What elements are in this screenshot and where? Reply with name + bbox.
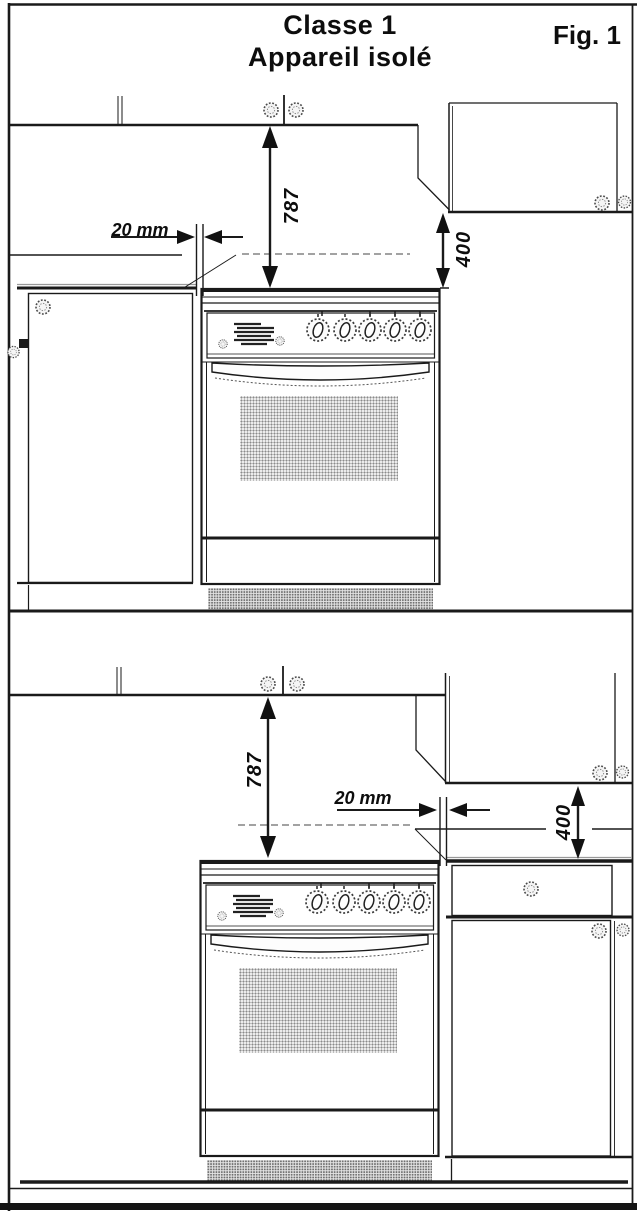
top-wall-line — [10, 254, 449, 289]
top-400-dimension-label: 400 — [452, 214, 476, 284]
bottom-400-dimension-label: 400 — [552, 787, 576, 857]
top-gap-dimension-label: 20 mm — [85, 219, 195, 241]
top-gap-lines — [197, 224, 204, 296]
bottom-gap-dimension-label: 20 mm — [308, 787, 418, 809]
figure-title-line2: Appareil isolé — [185, 41, 495, 73]
page-frame-bottom — [0, 1203, 637, 1210]
page-frame — [8, 3, 637, 1211]
top-diagram-linework — [8, 95, 632, 611]
top-400-arrow — [436, 213, 450, 288]
figure-number-label: Fig. 1 — [541, 20, 633, 51]
stove-drawing-top — [201, 289, 440, 584]
bottom-787-dimension-label: 787 — [243, 735, 267, 805]
top-787-dimension-label: 787 — [280, 171, 304, 241]
figure-linework — [0, 0, 637, 1215]
top-wall-cabinets — [10, 95, 632, 212]
bottom-right-base-cabinet — [445, 858, 632, 1182]
figure-title: Classe 1 Appareil isolé — [185, 9, 495, 73]
figure-page: Classe 1 Appareil isolé Fig. 1 20 mm 787… — [0, 0, 637, 1215]
bottom-diagram-linework — [10, 666, 632, 1182]
figure-title-line1: Classe 1 — [185, 9, 495, 41]
stove-drawing-bottom — [200, 861, 439, 1156]
top-787-arrow — [262, 126, 278, 288]
bottom-wall-cabinets — [10, 666, 632, 783]
top-left-base-cabinet — [8, 285, 196, 611]
